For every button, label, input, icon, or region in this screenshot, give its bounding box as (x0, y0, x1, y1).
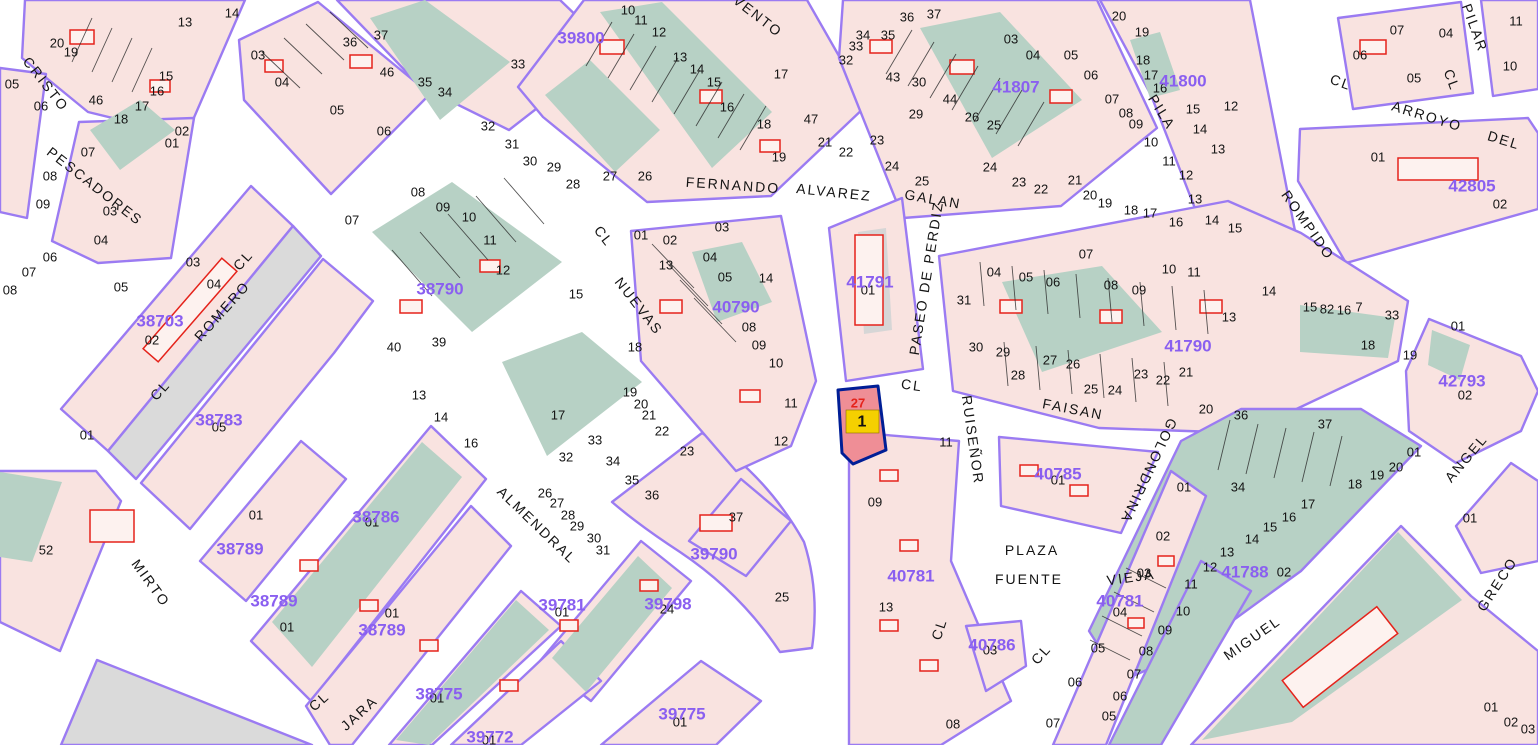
parcel-number-label: 20 (50, 36, 64, 51)
block-number-label: 40786 (968, 636, 1015, 655)
parcel-number-label: 21 (1179, 365, 1193, 380)
street-name-label: CL (1028, 641, 1055, 668)
parcel-number-label: 01 (80, 428, 94, 443)
parcel-number-label: 35 (418, 75, 432, 90)
parcel-number-label: 17 (135, 99, 149, 114)
parcel-number-label: 39 (432, 335, 446, 350)
parcel-number-label: 16 (150, 84, 164, 99)
parcel-number-label: 17 (1301, 497, 1315, 512)
parcel-number-label: 27 (603, 169, 617, 184)
block-number-label: 41791 (846, 273, 893, 292)
parcel-number-label: 18 (628, 340, 642, 355)
parcel-number-label: 31 (505, 137, 519, 152)
parcel-number-label: 17 (774, 67, 788, 82)
parcel-number-label: 29 (570, 519, 584, 534)
parcel-number-label: 11 (939, 435, 953, 450)
parcel-number-label: 01 (1407, 445, 1421, 460)
parcel-number-label: 11 (784, 396, 798, 411)
parcel-number-label: 18 (1361, 338, 1375, 353)
block-number-label: 40790 (712, 298, 759, 317)
parcel-number-label: 15 (1303, 300, 1317, 315)
parcel-number-label: 15 (1263, 520, 1277, 535)
block-number-label: 38790 (416, 280, 463, 299)
parcel-number-label: 02 (1504, 715, 1518, 730)
block-number-label: 40781 (887, 567, 934, 586)
parcel-number-label: 22 (655, 424, 669, 439)
parcel-number-label: 40 (387, 340, 401, 355)
parcel-number-label: 25 (775, 590, 789, 605)
parcel-number-label: 30 (969, 340, 983, 355)
parcel-number-label: 33 (1385, 308, 1399, 323)
parcel-number-label: 09 (1129, 117, 1143, 132)
parcel-number-label: 01 (1484, 700, 1498, 715)
parcel-number-label: 33 (849, 39, 863, 54)
parcel-number-label: 04 (987, 265, 1001, 280)
parcel-number-label: 17 (551, 408, 565, 423)
parcel-number-label: 23 (1012, 175, 1026, 190)
block-number-label: 40781 (1096, 592, 1143, 611)
parcel-number-label: 26 (965, 110, 979, 125)
block-number-label: 39775 (658, 705, 705, 724)
block-number-label: 39798 (644, 595, 691, 614)
parcel-number-label: 08 (742, 320, 756, 335)
parcel-number-label: 13 (1220, 545, 1234, 560)
parcel-number-label: 28 (566, 177, 580, 192)
street-name-label: PLAZA (1005, 542, 1059, 558)
block-number-label: 41807 (992, 78, 1039, 97)
parcel-number-label: 20 (1389, 460, 1403, 475)
parcel-number-label: 05 (5, 77, 19, 92)
parcel-number-label: 37 (1318, 417, 1332, 432)
parcel-number-label: 25 (915, 174, 929, 189)
parcel-number-label: 18 (1136, 53, 1150, 68)
parcel-number-label: 43 (886, 70, 900, 85)
block-number-label: 39790 (690, 545, 737, 564)
parcel-number-label: 29 (996, 345, 1010, 360)
parcel-number-label: 03 (1521, 722, 1535, 737)
parcel-number-label: 37 (729, 510, 743, 525)
parcel-number-label: 13 (879, 600, 893, 615)
block-number-label: 41790 (1164, 337, 1211, 356)
parcel-number-label: 01 (385, 606, 399, 621)
parcel-number-label: 03 (1004, 32, 1018, 47)
parcel-number-label: 13 (1211, 142, 1225, 157)
street-name-label: MIRTO (128, 556, 173, 610)
parcel-number-label: 08 (946, 717, 960, 732)
parcel-number-label: 35 (881, 28, 895, 43)
parcel-number-label: 13 (673, 50, 687, 65)
parcel-number-label: 07 (22, 265, 36, 280)
parcel-number-label: 01 (165, 136, 179, 151)
parcel-number-label: 05 (330, 103, 344, 118)
parcel-number-label: 11 (634, 13, 648, 28)
parcel-number-label: 52 (39, 543, 53, 558)
parcel-number-label: 04 (94, 233, 108, 248)
parcel-number-label: 19 (1098, 196, 1112, 211)
parcel-number-label: 15 (1186, 102, 1200, 117)
parcel-number-label: 32 (559, 450, 573, 465)
parcel-number-label: 10 (621, 3, 635, 18)
parcel-number-label: 07 (1105, 92, 1119, 107)
parcel-number-label: 14 (1205, 213, 1219, 228)
parcel-number-label: 14 (1245, 532, 1259, 547)
parcel-number-label: 33 (511, 57, 525, 72)
parcel-number-label: 20 (1112, 9, 1126, 24)
parcel-number-label: 11 (1184, 577, 1198, 592)
block-number-label: 39800 (557, 29, 604, 48)
parcel-number-label: 08 (43, 169, 57, 184)
parcel-number-label: 46 (89, 93, 103, 108)
parcel-number-label: 19 (1370, 468, 1384, 483)
block-number-label: 38789 (250, 592, 297, 611)
parcel-number-label: 35 (625, 473, 639, 488)
parcel-number-label: 22 (1034, 182, 1048, 197)
parcel-number-label: 19 (772, 150, 786, 165)
parcel-number-label: 36 (343, 35, 357, 50)
parcel-number-label: 27 (1043, 353, 1057, 368)
parcel-number-label: 17 (1143, 206, 1157, 221)
parcel-number-label: 09 (436, 200, 450, 215)
parcel-number-label: 07 (1046, 716, 1060, 731)
block-number-label: 39772 (466, 728, 513, 745)
parcel-number-label: 44 (943, 92, 957, 107)
parcel-number-label: 19 (1403, 348, 1417, 363)
parcel-number-label: 20 (1083, 188, 1097, 203)
parcel-number-label: 14 (690, 62, 704, 77)
parcel-number-label: 02 (663, 233, 677, 248)
parcel-number-label: 12 (1179, 168, 1193, 183)
cadastral-map-viewport[interactable]: 27 1 20191314461516171805060708090304020… (0, 0, 1538, 745)
parcel-number-label: 15 (159, 69, 173, 84)
parcel-number-label: 19 (64, 45, 78, 60)
parcel-number-label: 02 (1156, 529, 1170, 544)
block-number-label: 38789 (358, 621, 405, 640)
parcel-number-label: 07 (81, 145, 95, 160)
parcel-number-label: 82 (1320, 302, 1334, 317)
parcel-number-label: 02 (1277, 565, 1291, 580)
block-number-label: 42793 (1438, 372, 1485, 391)
parcel-number-label: 12 (652, 25, 666, 40)
parcel-number-label: 18 (1124, 203, 1138, 218)
parcel-number-label: 36 (900, 10, 914, 25)
parcel-number-label: 16 (1169, 215, 1183, 230)
parcel-number-label: 02 (145, 333, 159, 348)
parcel-number-label: 18 (757, 117, 771, 132)
parcel-number-label: 31 (596, 543, 610, 558)
parcel-number-label: 04 (703, 250, 717, 265)
parcel-number-label: 05 (114, 280, 128, 295)
street-name-label: RUISEÑOR (959, 394, 987, 485)
parcel-number-label: 23 (1134, 367, 1148, 382)
parcel-number-label: 10 (462, 210, 476, 225)
parcel-number-label: 24 (983, 160, 997, 175)
parcel-number-label: 05 (1019, 270, 1033, 285)
block-number-label: 38775 (415, 685, 462, 704)
parcel-number-label: 37 (927, 7, 941, 22)
parcel-number-label: 09 (1158, 623, 1172, 638)
parcel-number-label: 14 (1193, 122, 1207, 137)
parcel-number-label: 32 (481, 119, 495, 134)
parcel-number-label: 11 (1162, 154, 1176, 169)
parcel-number-label: 01 (1463, 511, 1477, 526)
block-number-label: 41788 (1221, 563, 1268, 582)
parcel-number-label: 33 (588, 433, 602, 448)
parcel-number-label: 05 (1091, 641, 1105, 656)
street-name-label: CL (900, 376, 924, 395)
parcel-number-label: 20 (1199, 402, 1213, 417)
block-number-label: 38786 (352, 508, 399, 527)
parcel-number-label: 09 (868, 495, 882, 510)
parcel-number-label: 14 (1262, 284, 1276, 299)
parcel-number-label: 11 (483, 233, 497, 248)
parcel-number-label: 28 (1011, 368, 1025, 383)
parcel-number-label: 03 (186, 255, 200, 270)
street-name-label: FUENTE (995, 571, 1063, 587)
parcel-number-label: 05 (1064, 48, 1078, 63)
street-name-label: ALVAREZ (796, 180, 873, 204)
parcel-number-label: 16 (464, 436, 478, 451)
block-number-label: 38783 (195, 411, 242, 430)
parcel-number-label: 03 (715, 220, 729, 235)
parcel-number-label: 15 (707, 75, 721, 90)
parcel-number-label: 30 (523, 154, 537, 169)
highlight-layer: 27 1 (838, 386, 886, 464)
parcel-number-label: 22 (839, 145, 853, 160)
road-surface (61, 660, 312, 745)
parcel-number-label: 06 (1353, 48, 1367, 63)
parcel-number-label: 25 (987, 118, 1001, 133)
parcel-number-label: 36 (645, 488, 659, 503)
parcel-number-label: 12 (774, 434, 788, 449)
parcel-number-label: 26 (638, 169, 652, 184)
parcel-number-label: 47 (804, 112, 818, 127)
parcel-number-label: 16 (1337, 303, 1351, 318)
parcel-number-label: 06 (377, 124, 391, 139)
parcel-number-label: 25 (1084, 382, 1098, 397)
parcel-number-label: 14 (225, 6, 239, 21)
parcel-number-label: 06 (1084, 68, 1098, 83)
parcel-number-label: 06 (1113, 689, 1127, 704)
parcel-number-label: 18 (114, 112, 128, 127)
parcel-number-label: 16 (1282, 510, 1296, 525)
parcel-number-label: 34 (606, 454, 620, 469)
parcel-number-label: 08 (1139, 644, 1153, 659)
parcel-number-label: 13 (1188, 192, 1202, 207)
parcel-number-label: 19 (1135, 25, 1149, 40)
parcel-number-label: 15 (1228, 221, 1242, 236)
parcel-number-label: 14 (759, 271, 773, 286)
parcel-number-label: 06 (43, 250, 57, 265)
parcel-number-label: 34 (438, 85, 452, 100)
parcel-number-label: 10 (1503, 59, 1517, 74)
block-number-label: 42805 (1448, 177, 1495, 196)
block-number-label: 39781 (538, 596, 585, 615)
parcel-number-label: 36 (1234, 408, 1248, 423)
parcel-number-label: 03 (251, 48, 265, 63)
parcel-number-label: 09 (1132, 283, 1146, 298)
cadastral-map-canvas[interactable]: 27 1 20191314461516171805060708090304020… (0, 0, 1538, 745)
parcel-number-label: 04 (207, 277, 221, 292)
parcel-number-label: 05 (718, 270, 732, 285)
parcel-number-label: 14 (434, 410, 448, 425)
parcel-number-label: 21 (642, 408, 656, 423)
parcel-number-label: 12 (496, 263, 510, 278)
parcel-number-label: 23 (680, 444, 694, 459)
parcel-number-label: 06 (1068, 675, 1082, 690)
parcel-number-label: 30 (912, 75, 926, 90)
parcel-number-label: 01 (1177, 480, 1191, 495)
parcel-number-label: 07 (345, 213, 359, 228)
parcel-number-label: 34 (1231, 480, 1245, 495)
parcel-number-label: 08 (1104, 278, 1118, 293)
street-name-label: CL (591, 222, 617, 249)
parcel-number-label: 12 (1203, 560, 1217, 575)
parcel-number-label: 24 (1108, 383, 1122, 398)
parcel-number-label: 10 (1176, 604, 1190, 619)
parcel-number-label: 13 (1222, 310, 1236, 325)
parcel-number-label: 04 (1026, 48, 1040, 63)
block-number-label: 38789 (216, 540, 263, 559)
parcel-number-label: 07 (1390, 23, 1404, 38)
parcel-number-label: 01 (634, 228, 648, 243)
parcel-number-label: 21 (1068, 173, 1082, 188)
parcel-number-label: 10 (1162, 262, 1176, 277)
parcel-number-label: 07 (1079, 247, 1093, 262)
parcel-number-label: 29 (909, 107, 923, 122)
parcel-number-label: 13 (178, 15, 192, 30)
parcel-number-label: 01 (1371, 150, 1385, 165)
parcel-number-label: 08 (411, 185, 425, 200)
parcel-number-label: 22 (1156, 373, 1170, 388)
highlighted-parcel-marker-label: 1 (858, 414, 867, 431)
parcel-number-label: 7 (1355, 300, 1362, 315)
parcel-number-label: 32 (839, 53, 853, 68)
parcel-number-label: 04 (1439, 26, 1453, 41)
parcel-number-label: 05 (1102, 709, 1116, 724)
parcel-number-label: 31 (957, 293, 971, 308)
parcel-number-label: 08 (3, 283, 17, 298)
parcel-number-label: 07 (1127, 667, 1141, 682)
parcel-number-label: 13 (659, 258, 673, 273)
parcel-number-label: 12 (1224, 99, 1238, 114)
block-number-label: 38703 (136, 312, 183, 331)
parcel-number-label: 26 (1066, 357, 1080, 372)
parcel-number-label: 01 (1451, 319, 1465, 334)
parcel-number-label: 11 (1187, 265, 1201, 280)
parcel-number-label: 24 (885, 159, 899, 174)
parcel-number-label: 11 (1509, 14, 1523, 29)
city-block (601, 661, 761, 745)
parcel-number-label: 01 (249, 508, 263, 523)
parcel-number-label: 06 (1046, 275, 1060, 290)
parcel-number-label: 29 (547, 160, 561, 175)
parcel-number-label: 15 (569, 287, 583, 302)
parcel-number-label: 10 (1144, 135, 1158, 150)
parcel-number-label: 06 (34, 99, 48, 114)
parcel-number-label: 02 (1493, 197, 1507, 212)
parcel-number-label: 09 (752, 338, 766, 353)
parcel-number-label: 09 (36, 197, 50, 212)
parcel-number-label: 10 (769, 356, 783, 371)
parcel-number-label: 13 (412, 388, 426, 403)
parcel-number-label: 04 (275, 75, 289, 90)
parcel-number-label: 01 (280, 620, 294, 635)
parcel-number-label: 18 (1348, 477, 1362, 492)
parcel-number-label: 05 (1407, 71, 1421, 86)
block-number-label: 40785 (1034, 465, 1081, 484)
parcel-number-label: 16 (720, 100, 734, 115)
parcel-number-label: 21 (818, 135, 832, 150)
parcel-number-label: 23 (870, 133, 884, 148)
parcel-number-label: 46 (380, 65, 394, 80)
block-number-label: 41800 (1159, 72, 1206, 91)
highlighted-parcel-number: 27 (851, 396, 865, 411)
parcel-number-label: 37 (374, 28, 388, 43)
